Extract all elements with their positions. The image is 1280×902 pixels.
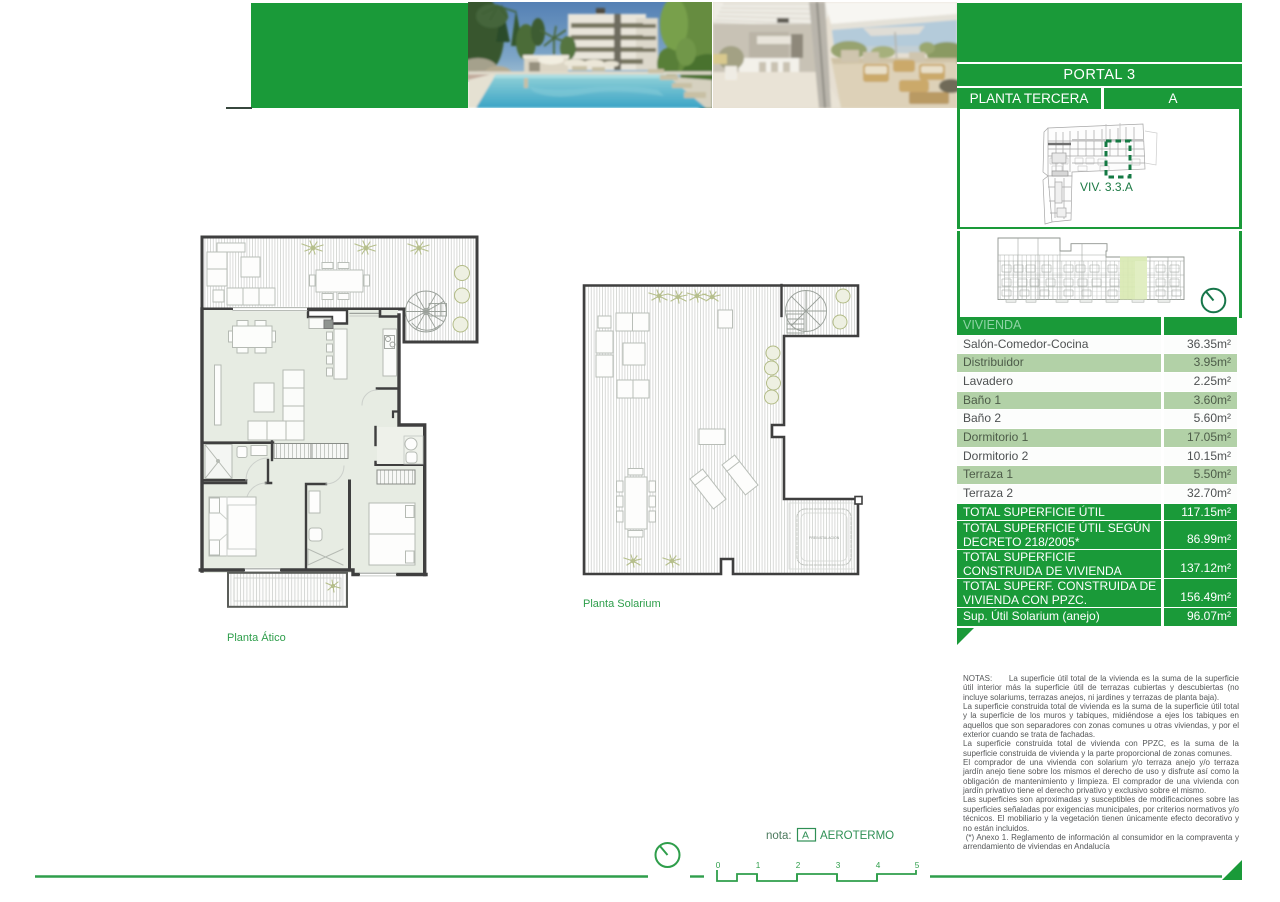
svg-text:3: 3 [836,861,841,870]
svg-text:Planta Ático: Planta Ático [227,631,286,644]
svg-text:1: 1 [756,861,761,870]
svg-text:4: 4 [876,861,881,870]
svg-text:AEROTERMO: AEROTERMO [820,830,894,842]
svg-text:Planta Solarium: Planta Solarium [583,598,661,610]
svg-text:nota:: nota: [766,830,792,842]
svg-text:A: A [802,830,809,842]
svg-text:PREINSTALACION: PREINSTALACION [809,536,840,540]
svg-text:2: 2 [796,861,801,870]
svg-text:0: 0 [716,861,721,870]
svg-text:5: 5 [915,861,920,870]
